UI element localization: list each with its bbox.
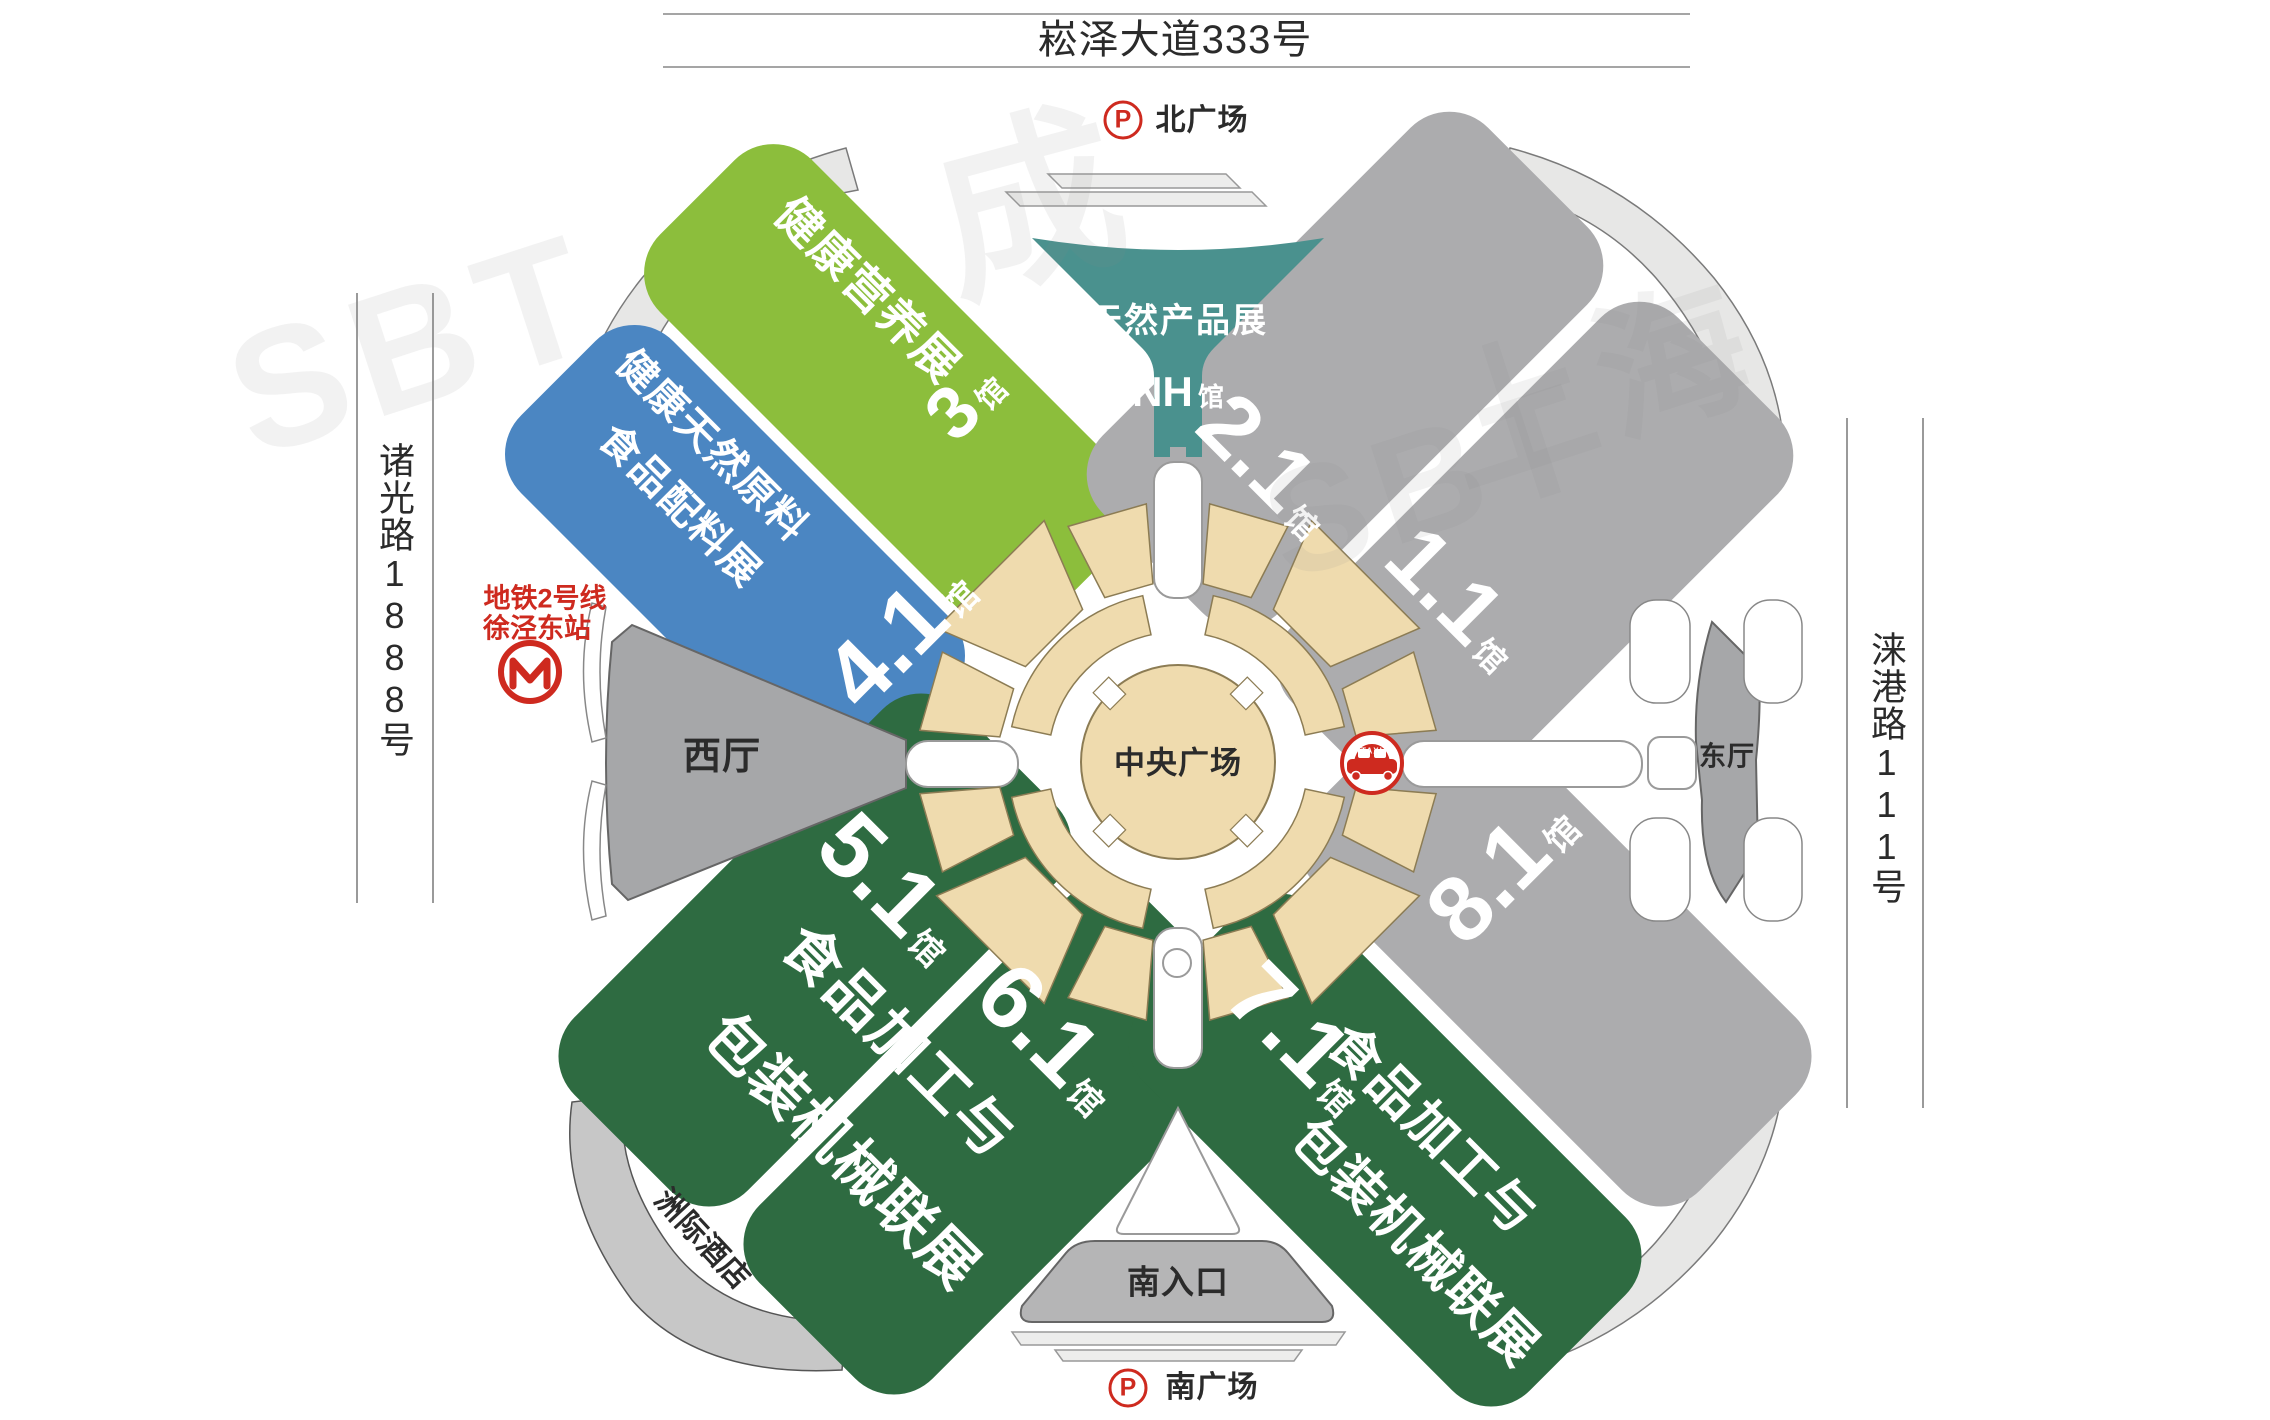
hall-nh-name: 天然产品展 — [1088, 304, 1268, 338]
south-entrance-label: 南入口 — [1127, 1266, 1229, 1299]
east-ramp-northeast — [1744, 600, 1802, 703]
central-plaza-label: 中央广场 — [1114, 748, 1242, 779]
south-corridor-node — [1163, 949, 1191, 977]
west-hall-label: 西厅 — [683, 738, 761, 776]
south-ramp-bar-2 — [1055, 1350, 1302, 1361]
east-corridor-node — [1648, 737, 1696, 789]
east-road-label: 涞港路111号 — [1868, 631, 1904, 905]
taxi-roof-label: TAXI — [1361, 747, 1383, 756]
south-parking-icon: P — [1109, 1369, 1148, 1408]
north-street-label: 崧泽大道333号 — [1038, 20, 1313, 60]
north-plaza-label: 北广场 — [1156, 106, 1249, 136]
metro-station-label: 徐泾东站 — [483, 616, 591, 643]
east-corridor — [1402, 741, 1642, 787]
east-ramp-northwest — [1630, 600, 1690, 703]
east-ramp-southeast — [1744, 818, 1802, 921]
south-plaza-label: 南广场 — [1166, 1373, 1259, 1403]
metro-line-label: 地铁2号线 — [483, 586, 606, 613]
east-ramp-southwest — [1630, 818, 1690, 921]
west-road-label: 诸光路1888号 — [376, 442, 412, 758]
hall-nh-number: NH馆 — [1132, 371, 1224, 413]
exhibition-venue-map: 崧泽大道333号 P 北广场 P 南广场 诸光路1888号 涞港路111号 地铁… — [0, 0, 2270, 1420]
metro-logo-icon — [501, 643, 559, 701]
north-corridor — [1154, 462, 1202, 598]
east-hall-label: 东厅 — [1699, 744, 1755, 771]
south-ramp-bar-1 — [1012, 1332, 1345, 1345]
west-corridor — [906, 741, 1018, 787]
taxi-icon — [1342, 733, 1402, 793]
west-ramp-lower — [584, 781, 607, 920]
